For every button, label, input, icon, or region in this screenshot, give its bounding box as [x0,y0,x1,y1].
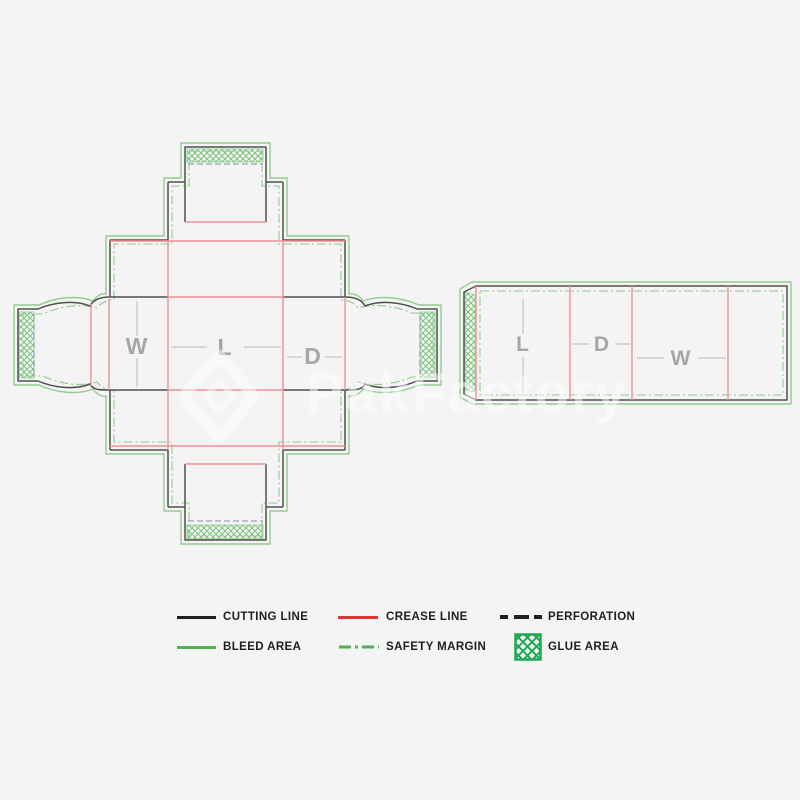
panel-label-w: W [126,333,149,359]
watermark-logo-icon [184,355,254,439]
dieline-template-page: W L D L D W [0,0,800,800]
strip-label-w: W [671,347,692,370]
watermark-text: PakFactory [306,361,628,424]
glue-area-left-tab [19,312,34,378]
glue-area-bottom-flap [187,525,263,539]
strip-label-l: L [516,333,530,356]
strip-label-d: D [594,333,610,356]
watermark: PakFactory [184,355,628,439]
cross-dieline: W L D [14,143,441,544]
dieline-canvas: W L D L D W [0,0,800,800]
watermark-logo-inner [206,381,233,412]
